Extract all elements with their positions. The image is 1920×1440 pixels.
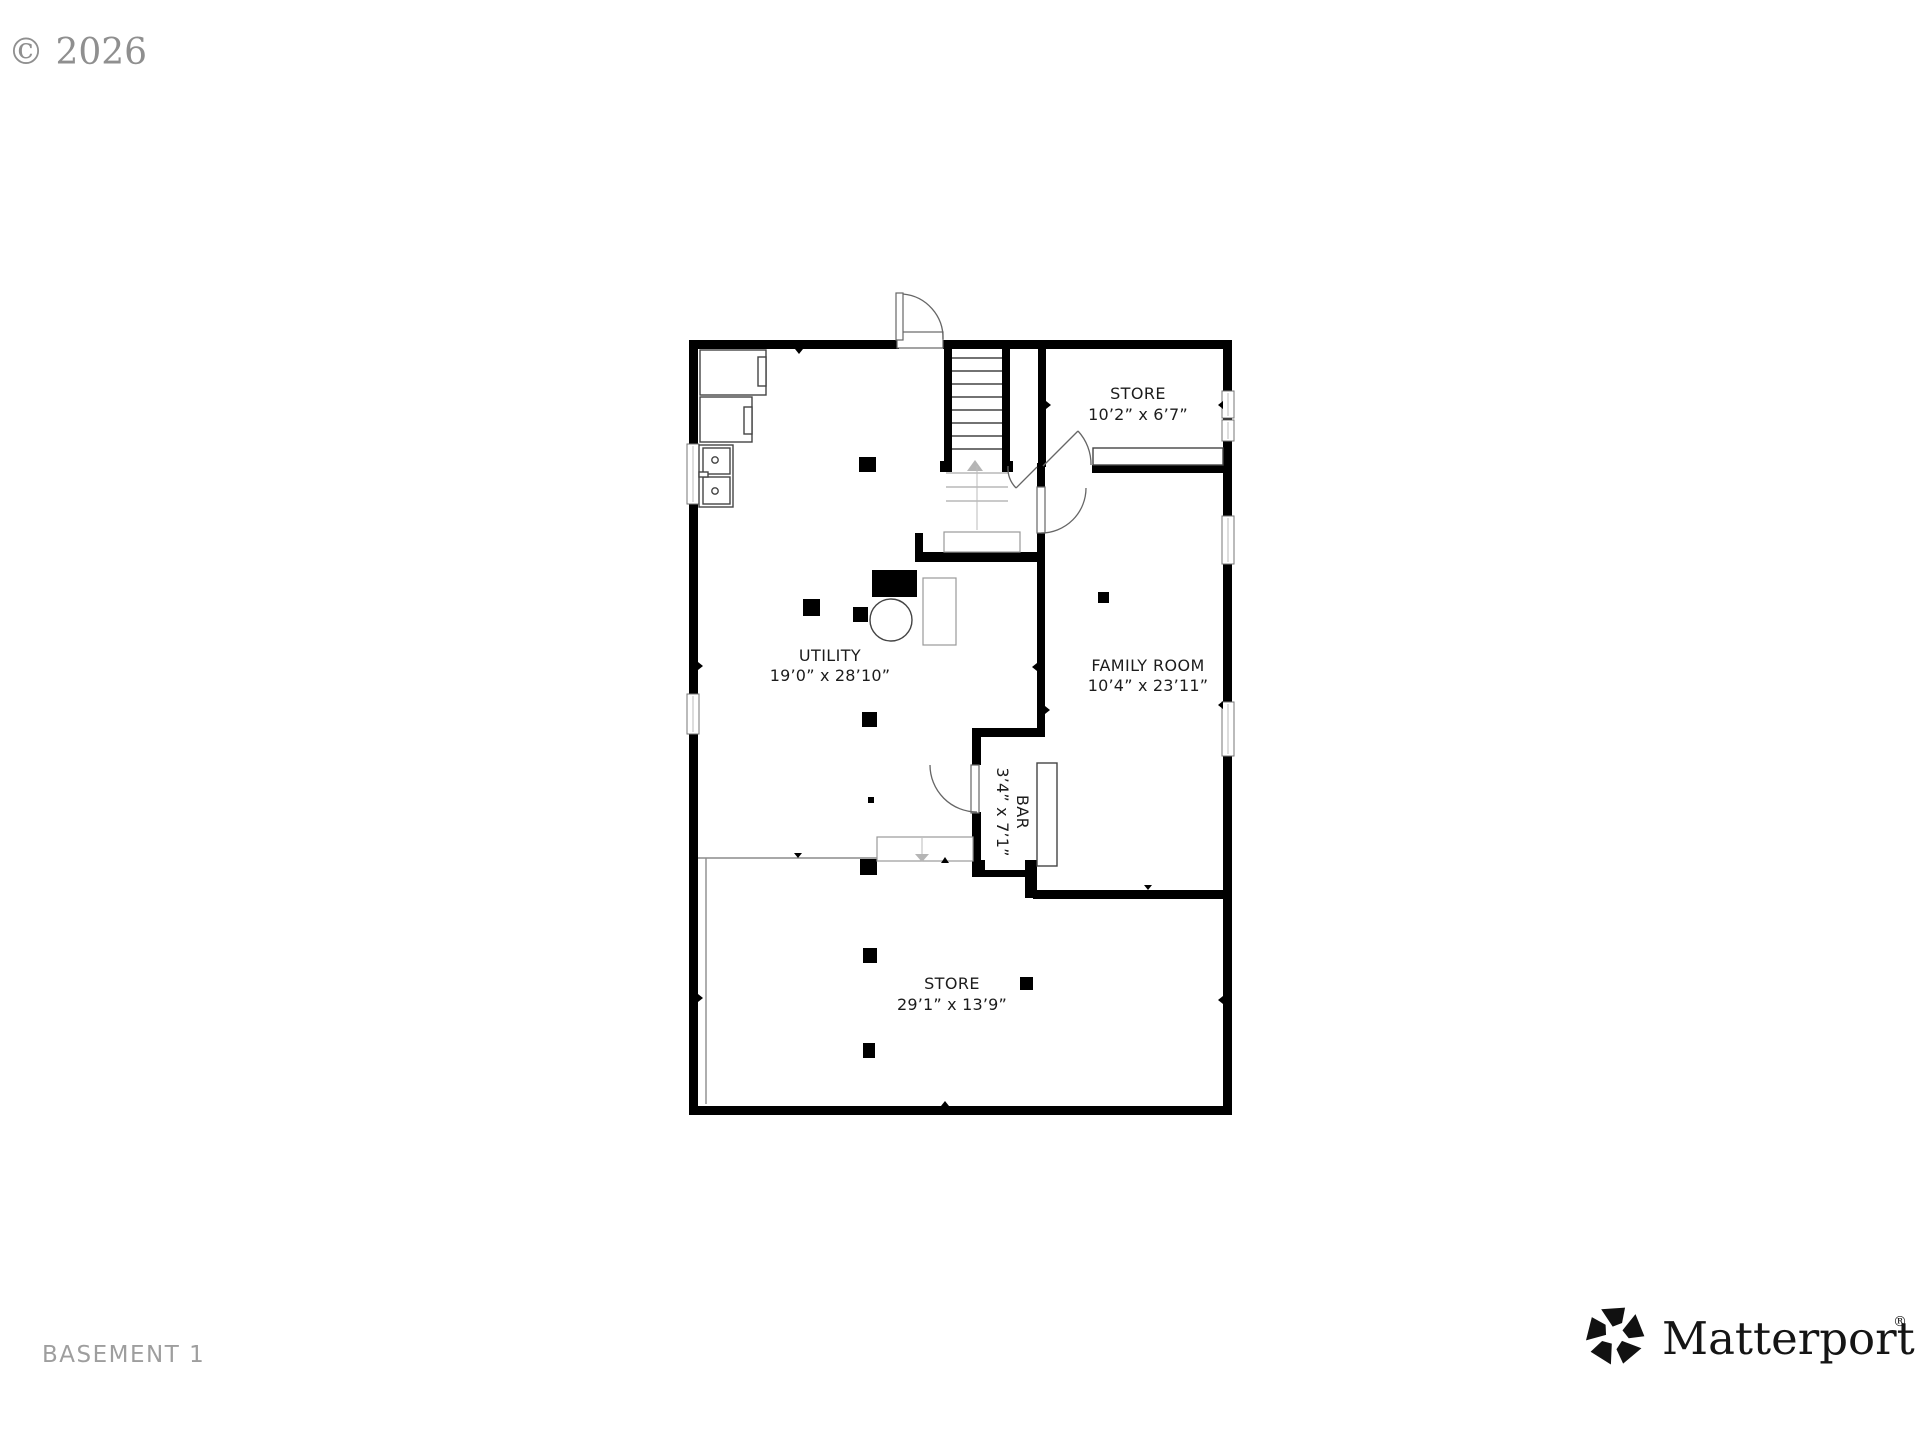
wall-segment <box>689 1106 1232 1115</box>
wall-tick <box>1144 885 1152 890</box>
room-name: STORE <box>1110 384 1166 403</box>
door-threshold <box>897 332 943 348</box>
faucet-icon <box>712 488 718 494</box>
family-left-wall <box>1037 532 1045 737</box>
wall-segment <box>689 340 698 445</box>
support-post <box>868 797 874 803</box>
door-leaf <box>971 765 979 813</box>
door-family-room <box>1037 487 1086 533</box>
window <box>687 444 699 504</box>
support-post <box>860 859 877 875</box>
door-leaf <box>1016 467 1037 488</box>
room-dividers <box>698 837 973 1104</box>
wall-tick <box>698 994 703 1002</box>
step-down-indicator <box>877 837 973 862</box>
family-wall-stub <box>1037 463 1045 487</box>
wall-tick <box>1218 996 1223 1004</box>
wall-segment <box>1223 441 1232 517</box>
under-stair-shelf <box>944 532 1020 552</box>
matterport-logo: Matterport ® <box>1586 1308 1915 1365</box>
washer <box>700 397 752 442</box>
bar-left-wall-upper <box>972 737 981 765</box>
wall-tick <box>941 1101 949 1106</box>
window <box>1222 516 1234 564</box>
family-bottom-wall <box>1033 890 1231 899</box>
room-dims: 10’2” x 6’7” <box>1088 405 1188 424</box>
wall-segment <box>689 340 899 349</box>
support-post <box>803 599 820 616</box>
room-name: UTILITY <box>799 646 861 665</box>
water-heater <box>872 570 917 597</box>
support-post <box>853 607 868 622</box>
bar-wall-notch <box>985 860 1025 870</box>
support-post <box>1020 977 1033 990</box>
floor-name-label: BASEMENT 1 <box>42 1342 205 1368</box>
wall-segment <box>689 733 698 1106</box>
dryer <box>700 350 766 395</box>
matterport-logo-text: Matterport <box>1662 1312 1915 1365</box>
room-dims: 19’0” x 28’10” <box>770 666 890 685</box>
window <box>1222 702 1234 756</box>
door-bar <box>930 765 979 813</box>
door-store-upper <box>1043 431 1091 466</box>
door-swing-arc <box>1041 488 1086 533</box>
wall-tick <box>1045 706 1050 714</box>
room-dims: 29’1” x 13’9” <box>897 995 1007 1014</box>
floorplan-page: STORE 10’2” x 6’7” UTILITY 19’0” x 28’10… <box>0 0 1920 1440</box>
bar-jog-wall <box>972 728 1043 737</box>
room-dims: 3’4” x 7’1” <box>993 767 1012 856</box>
matterport-logo-icon <box>1586 1308 1644 1365</box>
closet-wall-h <box>915 552 1037 562</box>
window <box>687 694 699 734</box>
door-leaf <box>1043 431 1078 466</box>
interior-walls <box>915 348 1231 899</box>
wall-tick <box>1218 401 1223 409</box>
door-leaf <box>896 293 903 340</box>
room-name: BAR <box>1013 795 1032 829</box>
door-swing-arc <box>930 765 977 812</box>
wall-segment <box>689 503 698 695</box>
store-left-wall <box>1038 348 1046 467</box>
room-labels: STORE 10’2” x 6’7” UTILITY 19’0” x 28’10… <box>770 384 1208 1014</box>
closet-wall-v <box>915 533 923 553</box>
pressure-tank <box>870 599 912 641</box>
support-post <box>862 712 877 727</box>
laundry-sink <box>699 445 733 507</box>
room-label-family-room: FAMILY ROOM 10’4” x 23’11” <box>1088 656 1208 695</box>
wall-tick <box>795 349 803 354</box>
support-post <box>863 1043 875 1058</box>
stair-wall-right <box>1002 348 1010 462</box>
door-swing-arc <box>1078 431 1091 465</box>
registered-mark: ® <box>1893 1314 1907 1330</box>
door-leaf <box>1037 487 1045 533</box>
wall-segment <box>943 340 1232 349</box>
stair-wall-left <box>944 348 952 462</box>
support-post <box>863 948 877 963</box>
door-top-entry <box>896 293 943 348</box>
room-name: STORE <box>924 974 980 993</box>
window <box>1222 420 1234 441</box>
room-dims: 10’4” x 23’11” <box>1088 676 1208 695</box>
room-label-bar: BAR 3’4” x 7’1” <box>993 767 1032 856</box>
window <box>1222 391 1234 418</box>
room-label-utility: UTILITY 19’0” x 28’10” <box>770 646 890 685</box>
wall-segment <box>1223 340 1232 392</box>
wall-tick <box>698 662 703 670</box>
wall-tick <box>1032 663 1037 671</box>
store-bottom-wall <box>1092 465 1223 473</box>
stairs-direction-arrow <box>967 460 983 471</box>
faucet-icon <box>712 457 718 463</box>
copyright-watermark: © 2026 <box>8 32 147 73</box>
support-post <box>859 457 876 472</box>
bar-counter <box>1037 763 1057 866</box>
table <box>923 578 956 645</box>
wall-tick <box>794 853 802 858</box>
windows <box>687 391 1234 756</box>
wall-cap <box>940 461 952 472</box>
store-shelf <box>1093 448 1223 465</box>
wall-tick <box>1218 701 1223 709</box>
support-post <box>1098 592 1109 603</box>
wall-segment <box>1223 563 1232 703</box>
room-label-store-lower: STORE 29’1” x 13’9” <box>897 974 1007 1014</box>
fixtures <box>699 350 1223 1058</box>
floorplan-canvas: STORE 10’2” x 6’7” UTILITY 19’0” x 28’10… <box>0 0 1920 1440</box>
room-name: FAMILY ROOM <box>1091 656 1204 675</box>
wall-tick <box>1046 401 1051 409</box>
wall-segment <box>1223 755 1232 1106</box>
room-label-store-upper: STORE 10’2” x 6’7” <box>1088 384 1188 424</box>
